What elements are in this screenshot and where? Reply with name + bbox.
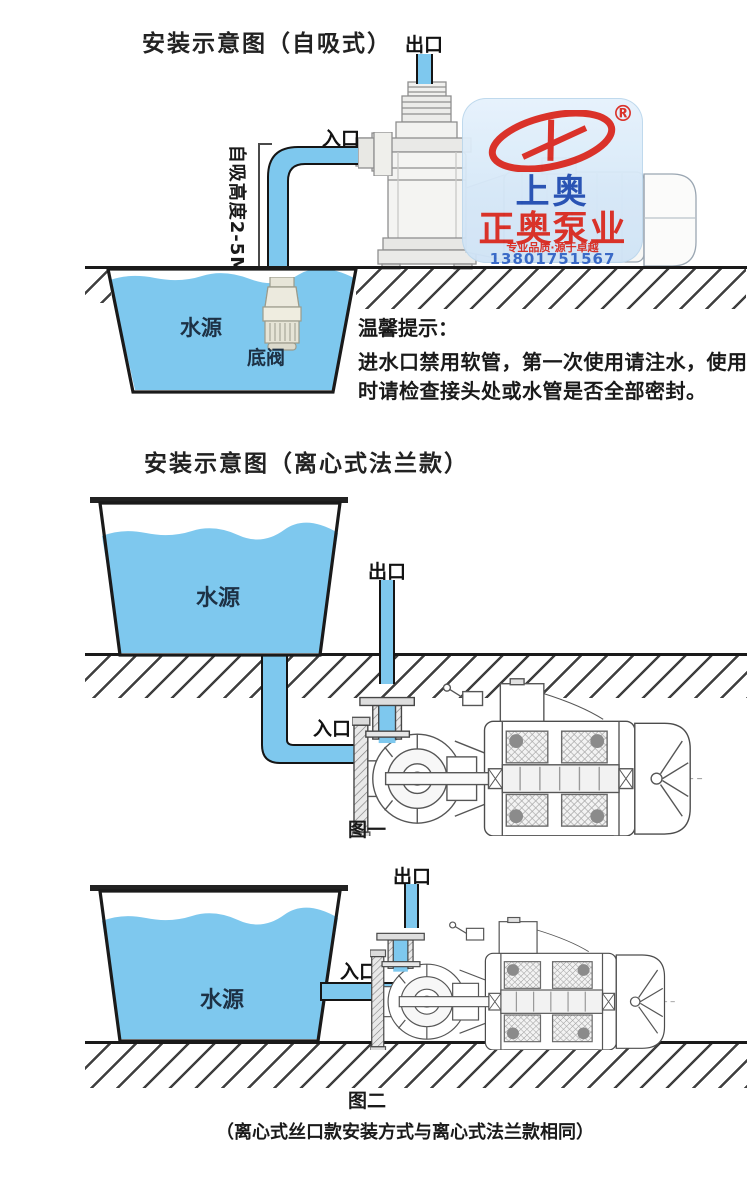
diagram3-water-source-label: 水源	[200, 982, 244, 1014]
foot-valve-label: 底阀	[247, 343, 285, 370]
centrifugal-pump-figure1	[352, 658, 708, 836]
water-tank-2	[88, 495, 352, 658]
brand-logo: ® 上奥 正奥泵业 专业品质·源于卓越 13801751567	[462, 98, 643, 263]
diagram2-title: 安装示意图（离心式法兰款）	[144, 444, 469, 478]
notice-heading: 温馨提示：	[358, 312, 750, 341]
installation-footnote: （离心式丝口款安装方式与离心式法兰款相同）	[140, 1118, 670, 1144]
centrifugal-pump-figure2	[370, 900, 680, 1050]
diagram1-title: 安装示意图（自吸式）	[142, 24, 392, 58]
notice-body: 进水口禁用软管，第一次使用请注水，使用时请检查接头处或水管是否全部密封。	[358, 348, 750, 406]
diagram1-outlet-label: 出口	[405, 30, 443, 57]
warm-notice: 温馨提示： 进水口禁用软管，第一次使用请注水，使用时请检查接头处或水管是否全部密…	[358, 312, 750, 406]
figure1-caption: 图一	[348, 815, 386, 842]
ground-hatch-1-right	[356, 269, 746, 309]
diagram2-inlet-label: 入口	[313, 714, 351, 741]
foot-valve-drawing	[262, 277, 302, 352]
figure2-caption: 图二	[348, 1086, 386, 1113]
ground-hatch-3	[85, 1044, 747, 1088]
water-tank-3	[88, 883, 352, 1044]
diagram1-outlet-pipe	[416, 54, 433, 84]
water-tank-1	[100, 265, 365, 397]
diagram2-water-source-label: 水源	[196, 580, 240, 612]
brand-ellipse-mark	[476, 110, 628, 172]
suction-height-label: 自吸高度2-5M	[225, 144, 251, 276]
installation-diagram-page: 安装示意图（自吸式） 出口	[0, 0, 750, 1177]
diagram1-water-source-label: 水源	[180, 312, 222, 342]
diagram1-inlet-coupling	[358, 132, 394, 176]
